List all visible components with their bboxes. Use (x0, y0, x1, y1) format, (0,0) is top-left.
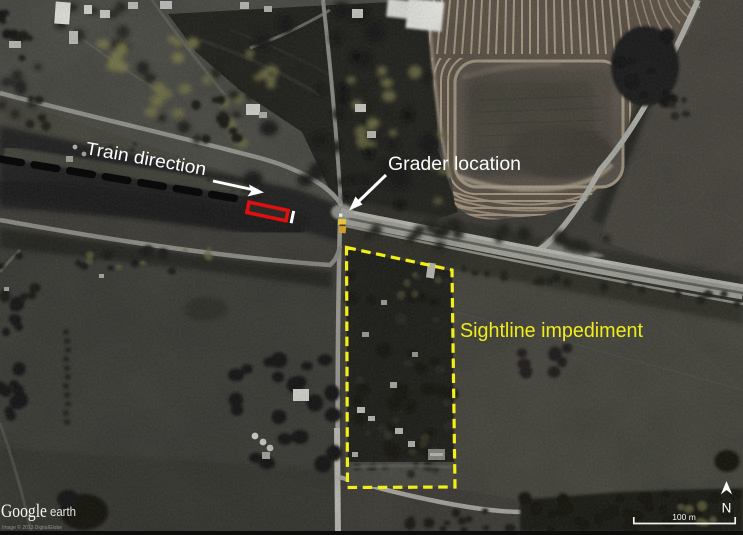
svg-text:100 m: 100 m (672, 512, 696, 522)
svg-text:Google: Google (1, 502, 47, 522)
svg-text:Grader location: Grader location (388, 154, 521, 175)
svg-text:earth: earth (50, 504, 76, 519)
svg-text:Sightline impediment: Sightline impediment (460, 319, 643, 342)
svg-text:N: N (722, 501, 732, 516)
svg-text:Image © 2013 DigitalGlobe: Image © 2013 DigitalGlobe (2, 524, 62, 531)
